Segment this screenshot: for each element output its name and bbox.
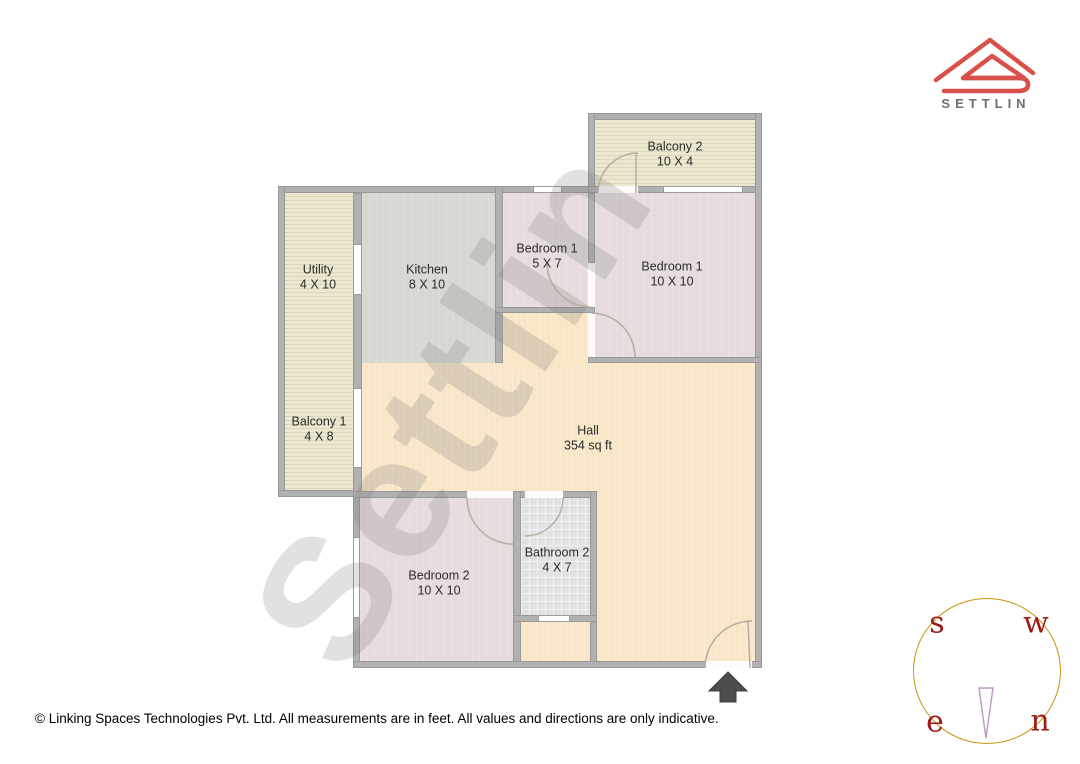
room-label-hall: Hall 354 sq ft <box>564 423 612 453</box>
compass-letter-s: s <box>929 606 944 641</box>
room-dims: 5 X 7 <box>516 256 577 271</box>
room-label-kitchen: Kitchen 8 X 10 <box>406 262 448 292</box>
wall <box>353 661 762 668</box>
room-dims: 4 X 10 <box>300 277 336 292</box>
settlin-logo-text: SETTLIN <box>930 96 1042 111</box>
window <box>538 615 570 622</box>
wall <box>278 186 285 497</box>
room-dims: 4 X 7 <box>525 560 590 575</box>
settlin-roof-logo-icon <box>930 30 1042 100</box>
room-name: Bedroom 1 <box>641 259 702 273</box>
compass-needle-icon <box>975 686 999 742</box>
room-dims: 354 sq ft <box>564 438 612 453</box>
wall <box>513 491 521 668</box>
room-dims: 8 X 10 <box>406 277 448 292</box>
door-opening-main-entrance <box>705 661 752 668</box>
room-dims: 10 X 10 <box>641 274 702 289</box>
room-name: Hall <box>577 423 599 437</box>
logo-base-swirl <box>944 78 1028 91</box>
floor-plan: Settlin Balcony 2 <box>278 110 765 710</box>
room-name: Bedroom 2 <box>408 568 469 582</box>
room-label-bedroom-1: Bedroom 1 10 X 10 <box>641 259 702 289</box>
room-label-utility: Utility 4 X 10 <box>300 262 336 292</box>
wall <box>588 357 762 363</box>
window <box>663 186 743 193</box>
wall <box>755 113 762 668</box>
wall <box>590 491 597 668</box>
room-label-bedroom-2: Bedroom 2 10 X 10 <box>408 568 469 598</box>
footer-copyright: © Linking Spaces Technologies Pvt. Ltd. … <box>35 711 719 726</box>
room-name: Balcony 1 <box>292 414 347 428</box>
compass-letter-w: w <box>1023 606 1049 641</box>
room-name: Utility <box>303 262 334 276</box>
room-dims: 10 X 4 <box>648 154 703 169</box>
room-label-bathroom-2: Bathroom 2 4 X 7 <box>525 545 590 575</box>
room-name: Bathroom 2 <box>525 545 590 559</box>
compass-letter-n: n <box>1030 704 1049 739</box>
room-name: Bedroom 1 <box>516 241 577 255</box>
entrance-arrow-icon <box>709 672 747 702</box>
window <box>353 244 362 295</box>
wall <box>588 113 762 120</box>
room-label-balcony-2: Balcony 2 10 X 4 <box>648 139 703 169</box>
compass-letter-e: e <box>926 705 944 740</box>
floorplan-page: { "brand": { "logo_text": "SETTLIN" }, "… <box>0 0 1080 764</box>
room-label-balcony-1: Balcony 1 4 X 8 <box>292 414 347 444</box>
room-dims: 10 X 10 <box>408 583 469 598</box>
door-opening-bathroom-2 <box>525 491 563 498</box>
room-dims: 4 X 8 <box>292 429 347 444</box>
room-name: Kitchen <box>406 262 448 276</box>
room-name: Balcony 2 <box>648 139 703 153</box>
room-label-bedroom-1-small: Bedroom 1 5 X 7 <box>516 241 577 271</box>
